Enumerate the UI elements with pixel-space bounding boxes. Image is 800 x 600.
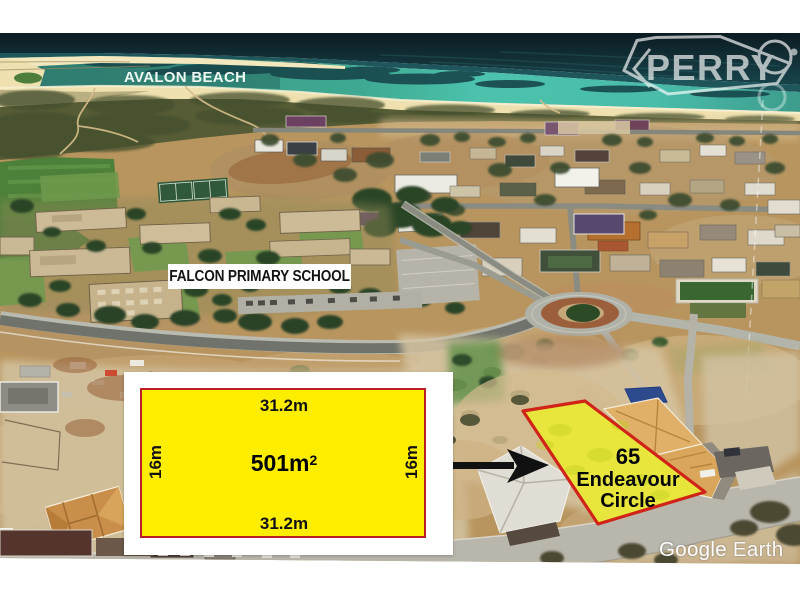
svg-text:PERRY: PERRY	[646, 47, 776, 88]
